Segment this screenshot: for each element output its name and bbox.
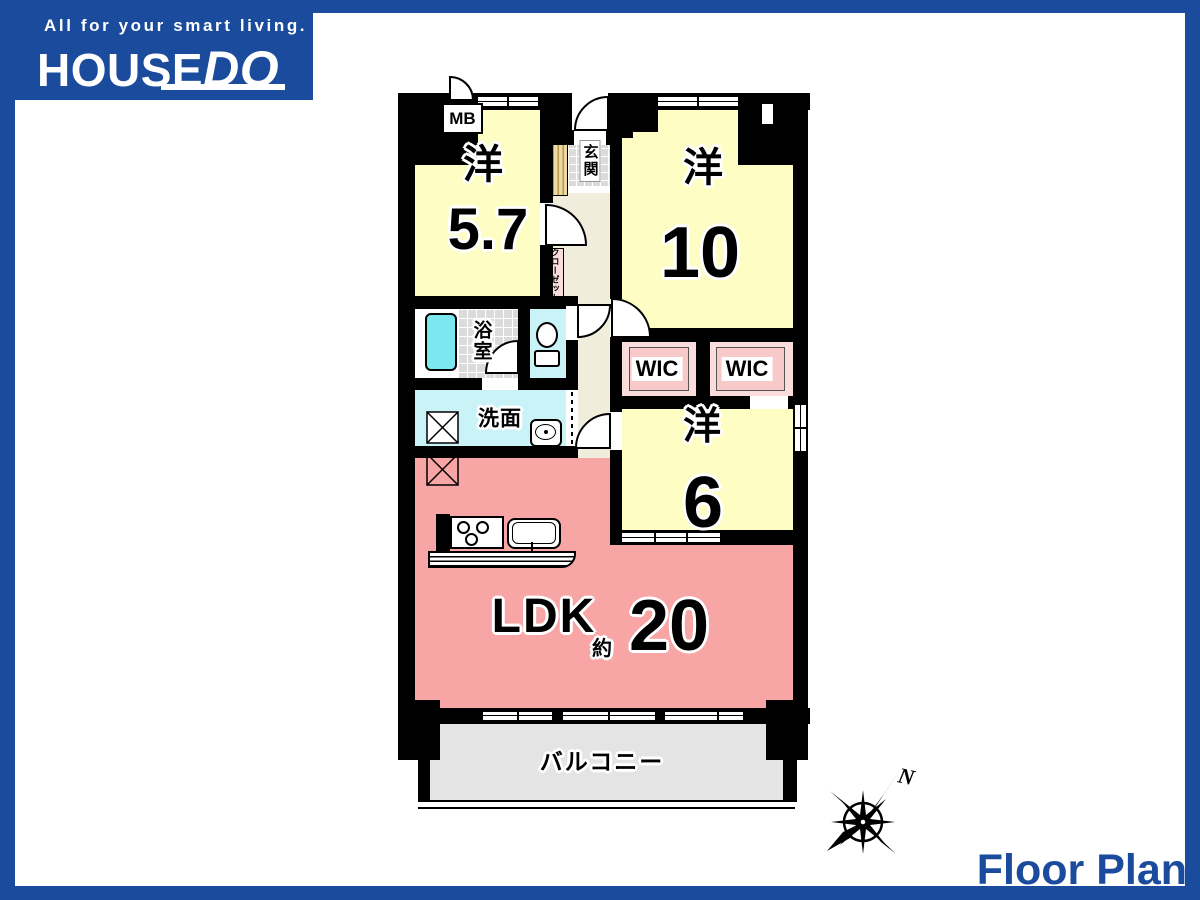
room-western-6-size: 6 [683, 467, 723, 539]
ldk-label: LDK [492, 593, 597, 641]
toilet-door-arc [578, 305, 610, 337]
wic-left-label: WIC [632, 357, 683, 381]
wic-right-label: WIC [722, 357, 773, 381]
bathroom-label: 浴室 [472, 320, 491, 362]
washroom-label: 洗面 [478, 409, 522, 430]
room-western-6-kanji: 洋 [683, 408, 721, 446]
floor-plan-title: Floor Plan [977, 849, 1187, 892]
entrance-door-arc [575, 97, 608, 130]
floor-plan-page: All for your smart living. HOUSEDO [0, 0, 1200, 900]
west6-door-arc [576, 414, 610, 448]
closet-label: クローゼット [551, 248, 560, 302]
ldk-approx-label: 約 [592, 639, 612, 659]
room-western-10-size: 10 [660, 217, 740, 289]
mb-door-arc [450, 77, 473, 100]
genkan-label: 玄関 [580, 140, 601, 182]
room-western-5-7-size: 5.7 [448, 201, 529, 259]
room-western-10-kanji: 洋 [683, 148, 723, 188]
compass-north-label: N [895, 762, 918, 790]
meter-box-label: MB [442, 103, 483, 134]
room-western-5-7-kanji: 洋 [463, 145, 503, 185]
west57-door-arc [546, 205, 586, 245]
west10-door-arc [612, 299, 650, 337]
compass-icon: N [827, 762, 918, 854]
balcony-label: バルコニー [540, 751, 665, 774]
ldk-size-label: 20 [629, 590, 709, 662]
